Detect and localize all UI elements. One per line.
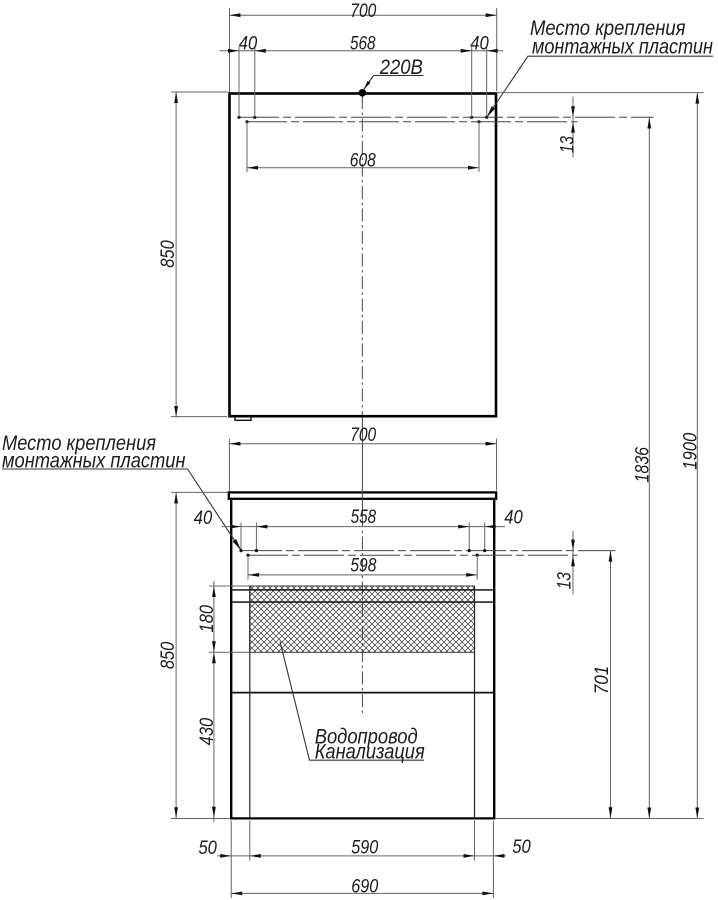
svg-text:700: 700 bbox=[350, 424, 376, 446]
svg-text:701: 701 bbox=[591, 666, 613, 695]
svg-text:1836: 1836 bbox=[631, 447, 653, 483]
svg-text:430: 430 bbox=[196, 718, 218, 746]
svg-text:180: 180 bbox=[196, 605, 218, 633]
svg-text:608: 608 bbox=[350, 149, 376, 171]
svg-text:50: 50 bbox=[512, 836, 531, 858]
svg-text:40: 40 bbox=[504, 507, 523, 529]
svg-text:13: 13 bbox=[556, 136, 578, 153]
svg-text:13: 13 bbox=[553, 572, 575, 589]
svg-text:1900: 1900 bbox=[679, 433, 701, 470]
svg-text:568: 568 bbox=[350, 33, 376, 55]
svg-text:50: 50 bbox=[198, 837, 217, 859]
svg-text:40: 40 bbox=[470, 33, 489, 55]
svg-text:558: 558 bbox=[351, 506, 377, 528]
svg-text:690: 690 bbox=[351, 875, 378, 897]
svg-text:850: 850 bbox=[157, 642, 179, 670]
svg-text:монтажных пластин: монтажных пластин bbox=[532, 36, 713, 59]
svg-text:598: 598 bbox=[350, 555, 376, 577]
svg-text:40: 40 bbox=[194, 507, 213, 529]
svg-text:590: 590 bbox=[351, 837, 378, 859]
svg-text:850: 850 bbox=[157, 240, 179, 268]
svg-text:40: 40 bbox=[239, 33, 258, 55]
svg-text:700: 700 bbox=[350, 0, 376, 22]
